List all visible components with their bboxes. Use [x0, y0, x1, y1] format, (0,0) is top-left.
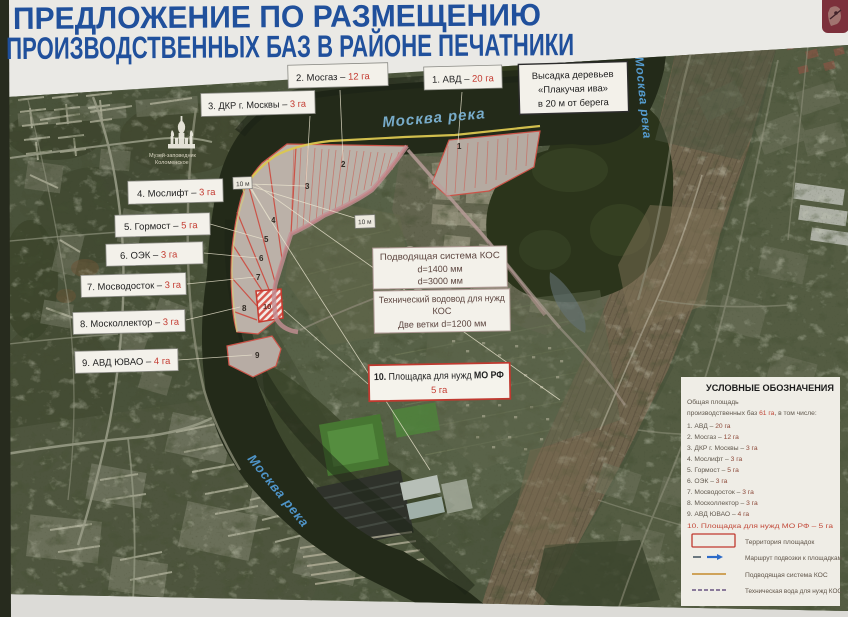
svg-text:Общая площадь: Общая площадь — [687, 398, 739, 406]
svg-text:6. ОЭК – 3 га: 6. ОЭК – 3 га — [120, 249, 178, 262]
svg-text:9. АВД ЮВАО – 4 га: 9. АВД ЮВАО – 4 га — [82, 356, 171, 369]
svg-text:ПРОИЗВОДСТВЕННЫХ БАЗ В РАЙОНЕ: ПРОИЗВОДСТВЕННЫХ БАЗ В РАЙОНЕ ПЕЧАТНИКИ — [6, 26, 574, 66]
svg-text:Высадка деревьев: Высадка деревьев — [532, 68, 614, 81]
svg-text:Территория площадок: Территория площадок — [745, 539, 814, 546]
svg-text:5 га: 5 га — [431, 384, 448, 395]
svg-text:6. ОЭК – 3 га: 6. ОЭК – 3 га — [687, 478, 728, 485]
svg-text:5. Гормост – 5 га: 5. Гормост – 5 га — [687, 467, 739, 474]
svg-text:Маршрут подвозки к площадкам: Маршрут подвозки к площадкам — [745, 555, 842, 562]
svg-text:Две ветки d=1200 мм: Две ветки d=1200 мм — [398, 318, 487, 330]
svg-text:d=1400 мм: d=1400 мм — [417, 264, 462, 275]
svg-text:Коломенское: Коломенское — [155, 160, 189, 166]
svg-text:1. АВД – 20 га: 1. АВД – 20 га — [687, 423, 731, 430]
svg-text:Подводящая система КОС: Подводящая система КОС — [380, 250, 501, 262]
svg-text:Музей-заповедник: Музей-заповедник — [149, 152, 197, 159]
svg-text:4. Мослифт – 3 га: 4. Мослифт – 3 га — [137, 187, 216, 200]
svg-text:9. АВД ЮВАО – 4 га: 9. АВД ЮВАО – 4 га — [687, 511, 749, 518]
svg-text:«Плакучая ива»: «Плакучая ива» — [538, 82, 608, 95]
svg-text:10. Площадка для нужд МО РФ: 10. Площадка для нужд МО РФ — [374, 370, 505, 383]
svg-text:2. Мосгаз – 12 га: 2. Мосгаз – 12 га — [296, 71, 371, 84]
svg-text:5. Гормост – 5 га: 5. Гормост – 5 га — [124, 220, 199, 233]
svg-text:1. АВД – 20 га: 1. АВД – 20 га — [432, 73, 495, 86]
svg-text:4. Мослифт – 3 га: 4. Мослифт – 3 га — [687, 456, 743, 463]
svg-text:в 20 м от берега: в 20 м от берега — [538, 96, 610, 109]
svg-text:2. Мосгаз – 12 га: 2. Мосгаз – 12 га — [687, 434, 739, 441]
svg-text:УСЛОВНЫЕ ОБОЗНАЧЕНИЯ: УСЛОВНЫЕ ОБОЗНАЧЕНИЯ — [706, 383, 834, 393]
svg-text:d=3000 мм: d=3000 мм — [418, 276, 463, 287]
svg-text:3. ДКР г. Москвы – 3 га: 3. ДКР г. Москвы – 3 га — [687, 445, 758, 452]
svg-text:Подводящая система КОС: Подводящая система КОС — [745, 572, 828, 579]
svg-text:7. Мосводосток – 3 га: 7. Мосводосток – 3 га — [687, 489, 754, 496]
svg-text:производственных баз 61 га, в: производственных баз 61 га, в том числе: — [687, 409, 817, 417]
svg-text:8. Москоллектор – 3 га: 8. Москоллектор – 3 га — [687, 500, 758, 507]
svg-text:Техническая вода для нужд КОС: Техническая вода для нужд КОС — [745, 588, 842, 595]
svg-text:КОС: КОС — [432, 306, 452, 316]
svg-text:10. Площадка для нужд МО РФ –: 10. Площадка для нужд МО РФ – 5 га — [687, 523, 833, 530]
